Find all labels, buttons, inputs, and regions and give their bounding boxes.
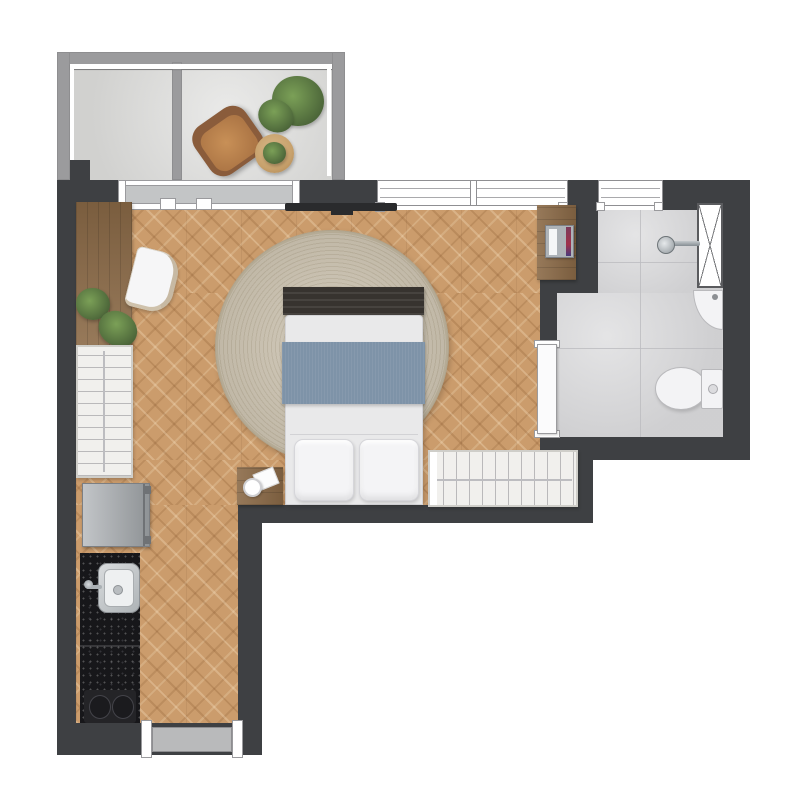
balcony-sliding-glass-door (118, 180, 300, 210)
tv-mount (331, 211, 353, 215)
wall-left (57, 180, 76, 755)
glass-railing-top (70, 64, 332, 69)
balcony-wall-left (57, 52, 70, 180)
slider-tab-2 (196, 198, 212, 210)
floor-plan (0, 0, 800, 804)
bathroom-sliding-door (537, 344, 557, 434)
bathwindow-tab-right (654, 202, 663, 211)
blue-blanket (282, 342, 425, 404)
closet-hanging (428, 450, 578, 507)
balcony-divider-wall (172, 62, 182, 180)
bathroom-window-glass (601, 188, 660, 198)
fridge-hinge-bottom (144, 536, 151, 544)
counter-seam (80, 645, 140, 647)
sink-faucet (84, 580, 93, 589)
duct-shaft (697, 203, 723, 288)
table-plant (263, 142, 286, 164)
slider-tab-1 (160, 198, 176, 210)
entry-door-jamb-left (141, 720, 152, 758)
cup (243, 478, 262, 497)
glass-railing-right (327, 64, 331, 176)
fridge-hinge-top (144, 486, 151, 494)
balcony-wall-right (332, 52, 345, 180)
cooktop (84, 690, 136, 723)
tile-grout-vertical (640, 210, 641, 437)
wall-desk-jut (540, 278, 598, 293)
slider-frame-top (118, 180, 300, 186)
shower-head (657, 236, 675, 254)
laptop-screen (549, 229, 557, 255)
closet-rail (434, 479, 571, 481)
bathwindow-tab-left (596, 202, 605, 211)
wall-right (723, 180, 750, 460)
entry-door-jamb-right (232, 720, 243, 758)
wall-bed-bottom (238, 505, 593, 523)
toilet-bowl (655, 367, 707, 410)
wall-balcony-notch (70, 160, 90, 182)
bedroom-window (377, 180, 568, 206)
entry-door-slab (152, 727, 232, 752)
basin-faucet (712, 294, 718, 300)
shower-arm (672, 241, 700, 246)
flush-button (708, 384, 718, 394)
pillow-left (294, 439, 354, 501)
bedroom-window-mullion (470, 181, 477, 205)
sink-drain (113, 585, 123, 595)
tile-grout-horizontal-2 (557, 348, 723, 349)
laptop-and-books (545, 225, 574, 258)
stainless-sink (98, 563, 140, 613)
wall-above-bath-door (540, 293, 557, 345)
wall-tv (285, 203, 397, 211)
pillow-right (359, 439, 419, 501)
burner-right (112, 695, 134, 719)
bed-footboard-bench (283, 287, 424, 315)
burner-left (89, 695, 111, 719)
sheet-seam (290, 434, 418, 435)
wardrobe-left-rail (103, 351, 105, 472)
wardrobe-left (76, 345, 133, 478)
closet-end-panel (430, 452, 437, 505)
refrigerator (82, 483, 150, 547)
book-spine (566, 227, 571, 256)
